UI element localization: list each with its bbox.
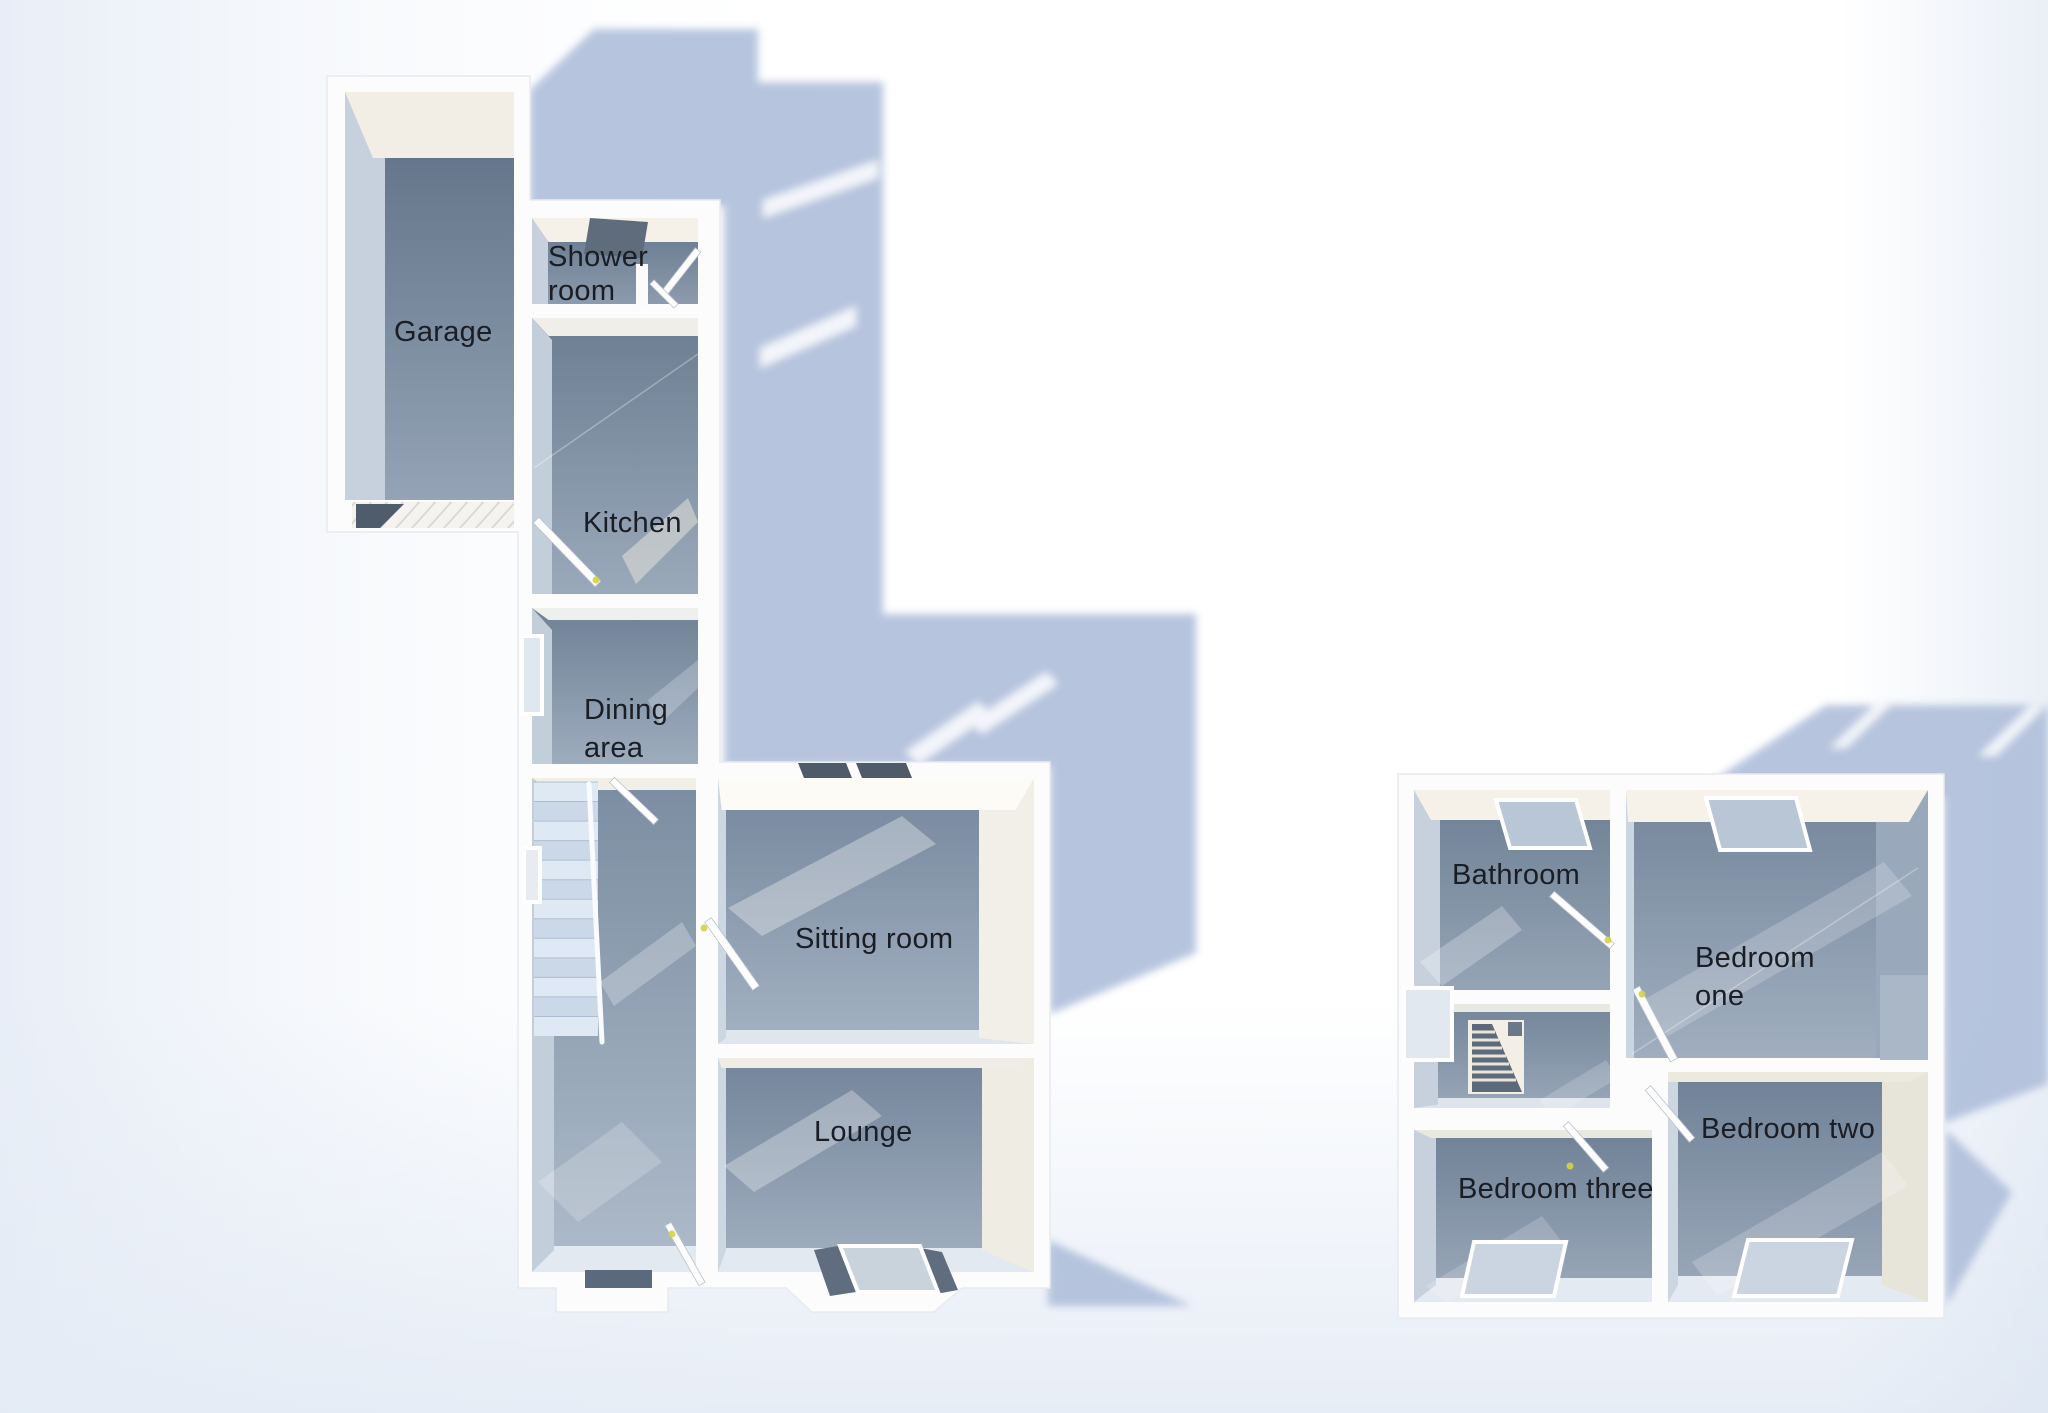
floor-plan-figure: GarageShowerroomKitchenDiningareaSitting…: [0, 0, 2048, 1413]
sitting-room-wall-face-right: [979, 778, 1034, 1044]
hall-wall-face-bottom: [532, 1246, 701, 1272]
shower-room-label-line1: Shower: [548, 241, 648, 273]
garage-label: Garage: [394, 316, 493, 348]
staircase: [534, 782, 602, 1042]
dining-area-wall-face-top: [532, 608, 703, 620]
bedroom-one-wall-face-left: [1626, 790, 1634, 1058]
bay-window-glass: [840, 1246, 938, 1292]
first-floor-door-handle-0: [1605, 937, 1612, 944]
first-floor-door-handle-2: [1567, 1163, 1574, 1170]
sitting-room-label: Sitting room: [795, 923, 953, 955]
room-garage: [345, 92, 532, 522]
stair-tread: [534, 997, 598, 1017]
bedroom-one-label-line1: Bedroom: [1695, 942, 1815, 974]
bedroom-one-wall-panel: [1880, 975, 1928, 1060]
sitting-room-wall-face-top: [718, 778, 1034, 810]
ground-floor-door-handle-0: [701, 925, 708, 932]
sitting-room-window-right: [856, 763, 912, 778]
lounge-wall-face-top: [718, 1058, 1034, 1068]
first-floor-door-handle-1: [1639, 991, 1646, 998]
lounge-wall-face-left: [718, 1051, 726, 1272]
garage-wall-face-top: [345, 92, 532, 158]
room-kitchen: [532, 318, 703, 616]
bedroom-two-wall-face-top: [1667, 1072, 1928, 1082]
bedroom-three-label: Bedroom three: [1458, 1173, 1654, 1205]
bedroom-two-label: Bedroom two: [1701, 1113, 1875, 1145]
ground-floor-door-handle-2: [669, 1231, 676, 1238]
ground-floor-door-handle-1: [593, 577, 600, 584]
kitchen-floor: [532, 318, 698, 594]
floor-plan-canvas: GarageShowerroomKitchenDiningareaSitting…: [0, 0, 2048, 1413]
porch-opening: [585, 1270, 652, 1288]
dining-window: [522, 636, 542, 714]
stair-tread: [534, 958, 598, 978]
bedroom-one-label-line2: one: [1695, 980, 1744, 1012]
lounge-label: Lounge: [814, 1116, 913, 1148]
first-floor: BathroomBedroomoneBedroom twoBedroom thr…: [1398, 700, 2048, 1318]
lounge-wall-face-right: [982, 1051, 1034, 1272]
dining-area-label-line1: Dining: [584, 694, 668, 726]
bedroom-three-wall-face-top: [1414, 1130, 1652, 1138]
bedroom-two-window: [1734, 1240, 1852, 1296]
kitchen-wall-face-top: [532, 318, 703, 336]
bathroom-label: Bathroom: [1452, 859, 1580, 891]
sitting-room-wall-face-left: [718, 778, 726, 1044]
landing-window: [1404, 988, 1452, 1060]
landing-wall-face-bottom: [1414, 1098, 1613, 1108]
bedroom-three-wall-face-left: [1414, 1125, 1436, 1302]
stairwell-newel: [1508, 1022, 1522, 1036]
bedroom-three-window: [1462, 1242, 1566, 1296]
shower-room-label-line2: room: [548, 275, 615, 307]
dining-area-label-line2: area: [584, 732, 644, 764]
kitchen-label: Kitchen: [583, 507, 682, 539]
bedroom-one-window: [1706, 798, 1810, 850]
sitting-room-window-left: [798, 763, 852, 778]
bathroom-window: [1496, 800, 1590, 848]
stair-tread: [534, 841, 598, 861]
hall-window: [524, 848, 540, 902]
bedroom-two-wall-face-left: [1668, 1071, 1678, 1302]
stair-tread: [534, 919, 598, 939]
stair-tread: [534, 880, 598, 900]
